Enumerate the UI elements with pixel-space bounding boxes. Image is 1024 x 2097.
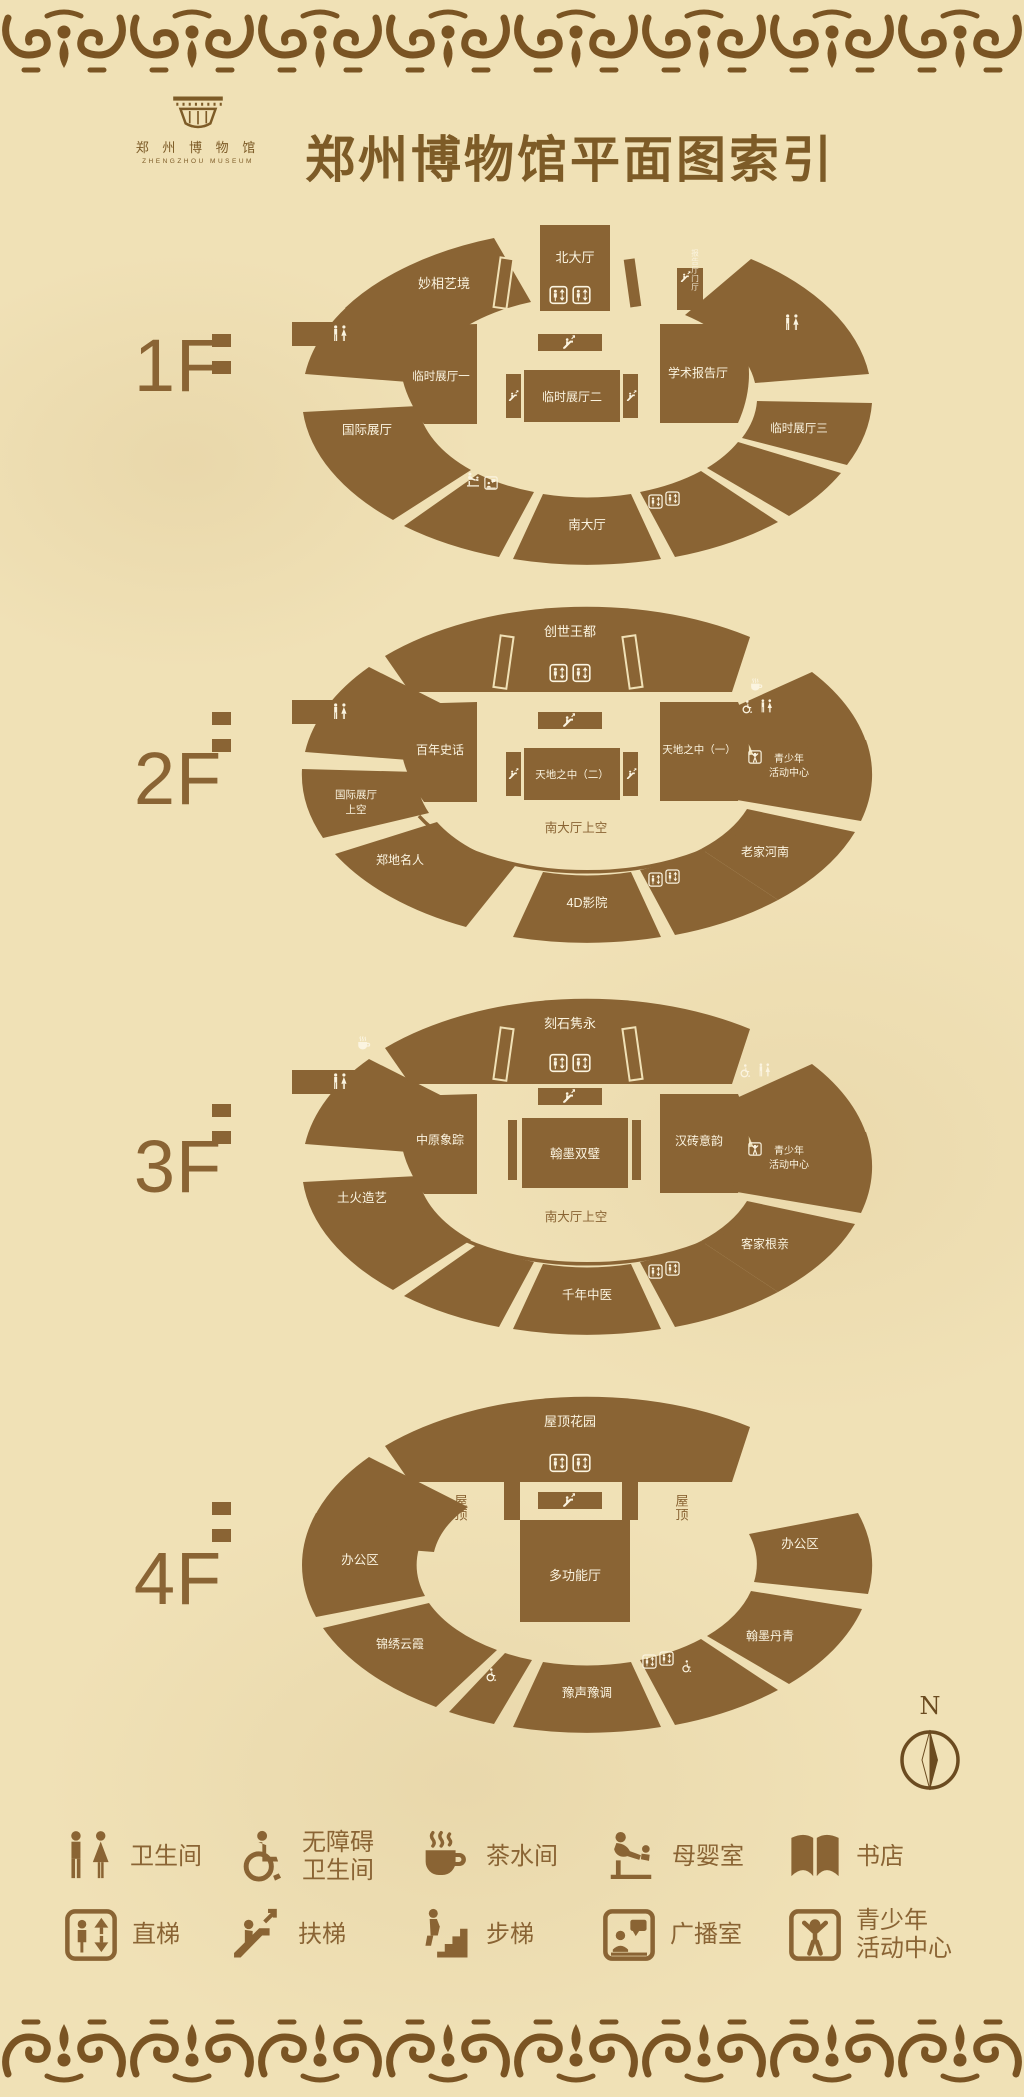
legend-label: 书店 (856, 1843, 904, 1871)
legend-label: 茶水间 (486, 1843, 558, 1871)
room-label-foyer: 报告厅门厅 (690, 247, 699, 291)
legend-item-tea-room: 茶水间 (418, 1828, 558, 1886)
logo-name-cn: 郑 州 博 物 馆 (128, 137, 268, 156)
room-label-intl-up2: 上空 (346, 803, 367, 816)
tea-room-icon (751, 679, 762, 691)
room-label-jinxiu: 锦绣云霞 (376, 1637, 424, 1651)
room-label-temp2: 临时展厅二 (542, 390, 602, 404)
decorative-border-top (0, 6, 1024, 84)
room-label-north-hall: 北大厅 (555, 250, 594, 265)
legend-item-elevator: 直梯 (64, 1906, 180, 1964)
legend-label: 步梯 (486, 1921, 534, 1949)
room-label-intl: 国际展厅 (342, 423, 392, 437)
room-label-top: 屋顶花园 (544, 1414, 596, 1429)
floor-4f-shapes (212, 1397, 872, 1733)
room-label-hanmo4: 翰墨丹青 (746, 1628, 794, 1643)
room-label-cinema: 4D影院 (567, 896, 608, 910)
room-label-youth2: 活动中心 (769, 1158, 809, 1171)
floor-plan-4f: 屋顶花园 办公区 屋顶 多功能厅 屋顶 办公区 锦绣云霞 豫声豫调 翰墨丹青 (197, 1390, 887, 1742)
accessible-restroom-icon (234, 1828, 288, 1886)
legend-label: 活动中心 (856, 1935, 952, 1963)
museum-logo: 郑 州 博 物 馆 ZHENGZHOU MUSEUM (128, 94, 268, 165)
logo-name-en: ZHENGZHOU MUSEUM (128, 158, 268, 165)
elevator-icon (64, 1906, 118, 1964)
escalator-icon (230, 1906, 284, 1964)
page-title: 郑州博物馆平面图索引 (260, 120, 880, 192)
room-label-multi: 多功能厅 (549, 1568, 601, 1583)
broadcast-room-icon (602, 1906, 656, 1964)
room-label-lecture: 学术报告厅 (668, 365, 728, 380)
room-label-kejia: 客家根亲 (741, 1236, 789, 1251)
legend-label: 广播室 (670, 1921, 742, 1949)
floor-plan-1f: 妙相艺境 北大厅 报告厅门厅 学术报告厅 临时展厅一 临时展厅二 国际展厅 南大… (197, 222, 887, 574)
decorative-border-bottom (0, 2008, 1024, 2086)
stairs-icon (418, 1906, 472, 1964)
restroom-icon (760, 1063, 770, 1076)
room-label-roof-right: 屋顶 (674, 1494, 689, 1522)
room-shape-office-right (749, 1513, 872, 1594)
accessible-restroom-icon (741, 1064, 750, 1077)
room-label-south-up: 南大厅上空 (545, 1209, 608, 1224)
tea-room-icon (418, 1828, 472, 1886)
legend-item-broadcast-room: 广播室 (602, 1906, 742, 1964)
room-label-hanmo: 翰墨双璧 (550, 1146, 600, 1161)
museum-building-icon (167, 94, 229, 130)
room-label-temp3: 临时展厅三 (770, 421, 828, 435)
room-label-zhongyi: 千年中医 (562, 1287, 612, 1302)
room-label-office-right: 办公区 (781, 1536, 819, 1551)
room-label-zheng: 郑地名人 (376, 852, 424, 867)
restroom-icon (62, 1828, 116, 1886)
room-label-heaven1: 天地之中（一） (662, 743, 736, 756)
legend-item-restroom: 卫生间 (62, 1828, 202, 1886)
room-label-top: 创世王都 (544, 624, 596, 639)
floor-plan-2f: 创世王都 国际展厅 上空 百年史话 天地之中（二） 天地之中（一） 青少年 活动… (197, 600, 887, 952)
room-label-tuhuo: 土火造艺 (337, 1191, 387, 1205)
room-label-heaven2: 天地之中（二） (535, 768, 609, 781)
room-label-elephant: 中原象踪 (416, 1132, 464, 1147)
compass: N (885, 1692, 975, 1802)
legend-item-accessible-restroom: 无障碍卫生间 (234, 1828, 374, 1886)
room-label-hanzhuan: 汉砖意韵 (675, 1133, 723, 1148)
room-label-temp1: 临时展厅一 (412, 369, 470, 383)
legend-label: 直梯 (132, 1921, 180, 1949)
room-label-top-left: 妙相艺境 (418, 276, 470, 291)
legend-label: 扶梯 (298, 1921, 346, 1949)
floor-plan-3f: 刻石隽永 中原象踪 翰墨双璧 汉砖意韵 青少年 活动中心 土火造艺 南大厅上空 … (197, 992, 887, 1344)
room-shape-top (385, 999, 750, 1084)
legend-label: 青少年 (856, 1907, 952, 1935)
room-label-south-hall: 南大厅 (568, 517, 606, 532)
legend-item-nursing-room: 母婴室 (604, 1828, 744, 1886)
room-label-office-left: 办公区 (341, 1552, 379, 1567)
room-label-youth2: 活动中心 (769, 766, 809, 779)
room-label-laojia: 老家河南 (741, 844, 789, 859)
legend-item-bookstore: 书店 (788, 1828, 904, 1886)
room-label-youth1: 青少年 (774, 1144, 804, 1157)
compass-north-label: N (885, 1692, 975, 1720)
legend-item-escalator: 扶梯 (230, 1906, 346, 1964)
nursing-room-icon (604, 1828, 658, 1886)
legend-label: 母婴室 (672, 1843, 744, 1871)
page: 郑 州 博 物 馆 ZHENGZHOU MUSEUM 郑州博物馆平面图索引 1F… (0, 0, 1024, 2097)
room-shape-zheng (335, 822, 515, 927)
legend-label: 无障碍 (302, 1829, 374, 1857)
room-label-roof-left: 屋顶 (453, 1494, 468, 1522)
room-label-intl-up1: 国际展厅 (335, 789, 377, 801)
room-label-south-up: 南大厅上空 (545, 820, 608, 835)
legend-item-youth-center: 青少年活动中心 (788, 1906, 952, 1964)
legend-item-stairs: 步梯 (418, 1906, 534, 1964)
youth-center-icon (788, 1906, 842, 1964)
room-label-yusheng: 豫声豫调 (562, 1686, 612, 1700)
room-label-youth1: 青少年 (774, 752, 804, 765)
legend-label: 卫生间 (302, 1857, 374, 1885)
room-label-century: 百年史话 (416, 743, 464, 757)
room-shape-youth (731, 740, 872, 821)
bookstore-icon (788, 1828, 842, 1886)
tea-room-icon (358, 1037, 370, 1050)
room-shape-youth (731, 1132, 872, 1213)
room-label-top: 刻石隽永 (544, 1016, 596, 1031)
legend-label: 卫生间 (130, 1843, 202, 1871)
